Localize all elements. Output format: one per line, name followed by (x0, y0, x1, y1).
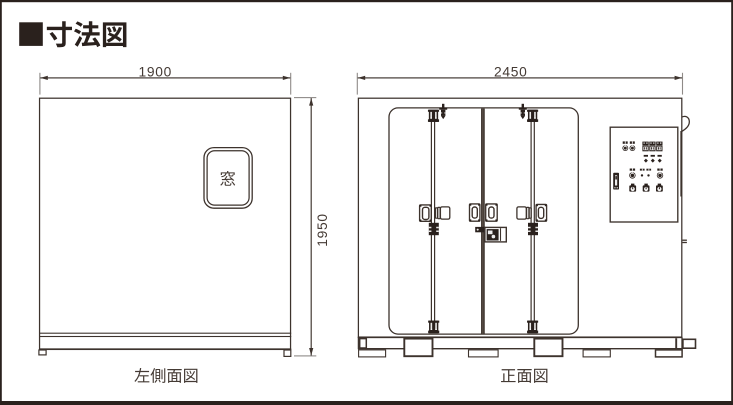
svg-text:2450: 2450 (494, 65, 528, 80)
svg-text:1900: 1900 (139, 65, 173, 80)
svg-text:1950: 1950 (315, 213, 330, 247)
